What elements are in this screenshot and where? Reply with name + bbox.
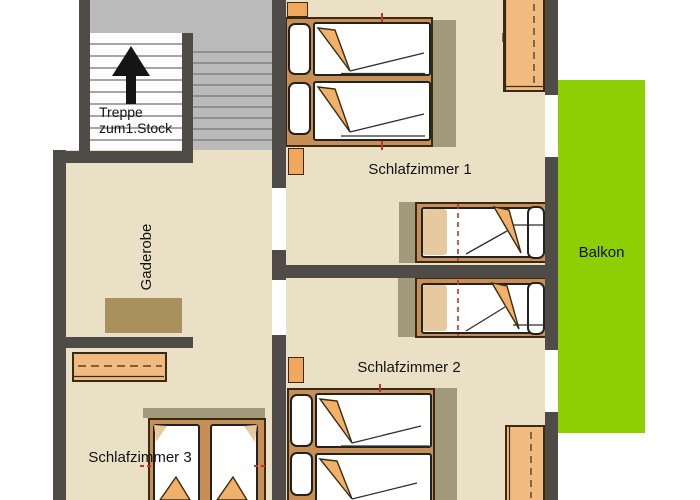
stairs-label: Treppe zum1.Stock bbox=[99, 104, 191, 136]
wall-stairs-left bbox=[79, 0, 90, 152]
wall-stairs-divider bbox=[182, 33, 193, 163]
floor-plan: Treppe zum1.Stock Gaderobe Schlafzimmer … bbox=[0, 0, 700, 500]
wall-middle-bottom bbox=[272, 335, 286, 500]
bedroom2-label: Schlafzimmer 2 bbox=[334, 359, 484, 376]
wall-left bbox=[53, 150, 66, 500]
wall-right-middle bbox=[545, 157, 558, 350]
stairs-label-line1: Treppe bbox=[99, 104, 191, 120]
wall-bedroom-divider bbox=[272, 265, 546, 278]
bedroom1-bed-decor bbox=[318, 13, 543, 261]
bedroom3-label: Schlafzimmer 3 bbox=[64, 449, 216, 466]
stairs-up-arrow-icon bbox=[112, 46, 150, 104]
bedroom1-label: Schlafzimmer 1 bbox=[345, 161, 495, 178]
wall-hallway-bottom bbox=[53, 337, 193, 348]
wall-below-stairs bbox=[53, 151, 193, 163]
wall-right-bottom bbox=[545, 412, 558, 500]
wall-middle-top bbox=[272, 0, 286, 188]
balcony-label: Balkon bbox=[558, 244, 645, 261]
hallway-label: Gaderobe bbox=[138, 197, 156, 317]
stairs-label-line2: zum1.Stock bbox=[99, 120, 191, 136]
wall-right-top bbox=[545, 0, 558, 95]
